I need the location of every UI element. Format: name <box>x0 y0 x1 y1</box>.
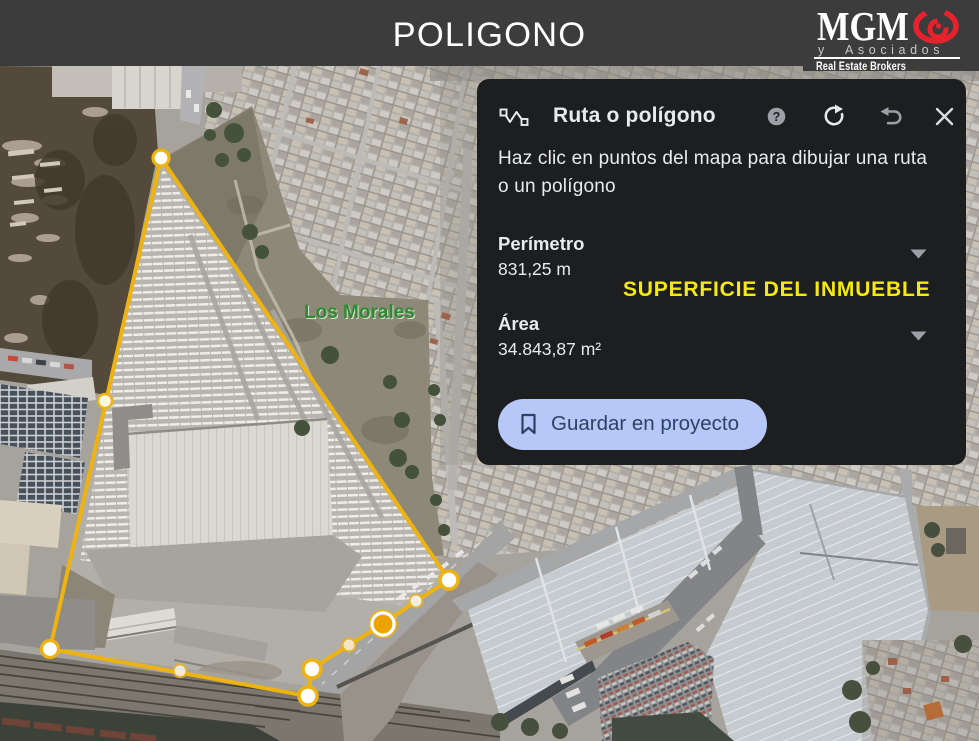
svg-text:Los Morales: Los Morales <box>304 302 415 323</box>
svg-text:?: ? <box>773 110 781 124</box>
